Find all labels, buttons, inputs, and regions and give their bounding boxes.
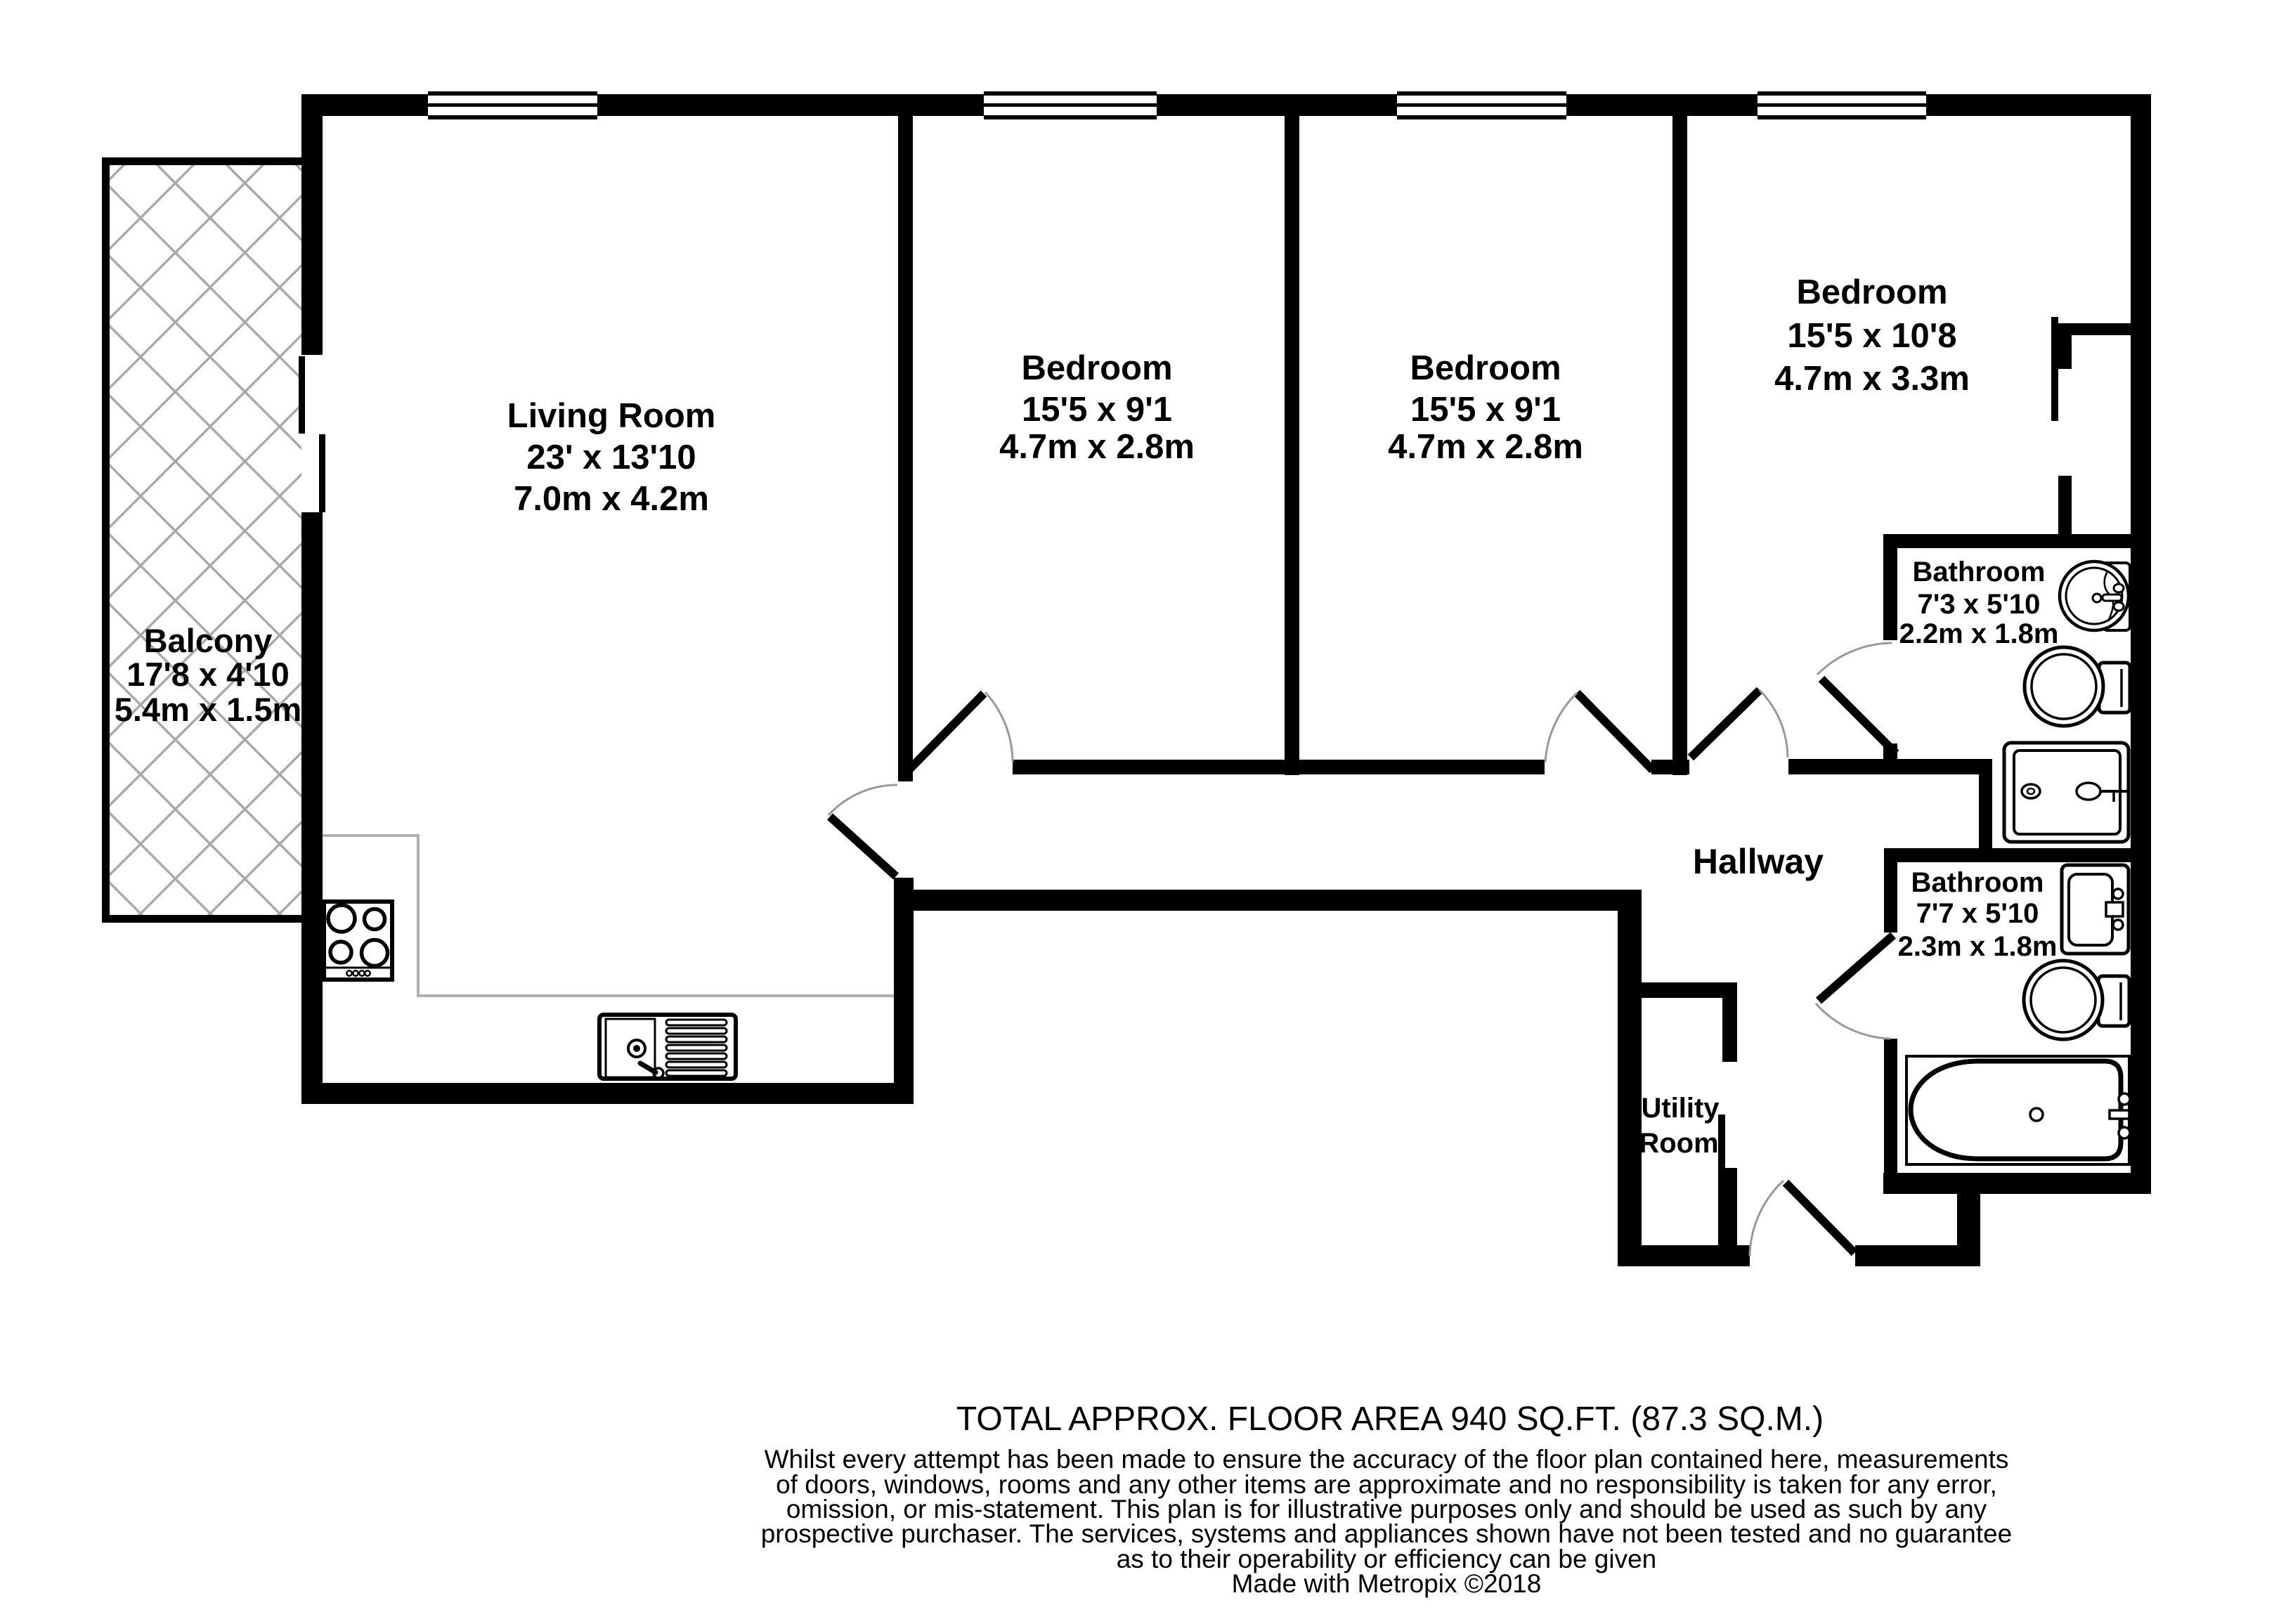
svg-text:Whilst every attempt has been: Whilst every attempt has been made to en… bbox=[765, 1445, 2009, 1474]
svg-text:TOTAL APPROX. FLOOR AREA 940 S: TOTAL APPROX. FLOOR AREA 940 SQ.FT. (87.… bbox=[956, 1401, 1824, 1438]
svg-text:5.4m x 1.5m: 5.4m x 1.5m bbox=[115, 691, 302, 728]
svg-text:2.2m x 1.8m: 2.2m x 1.8m bbox=[1899, 618, 2059, 649]
svg-text:Bathroom: Bathroom bbox=[1911, 867, 2044, 898]
svg-text:Balcony: Balcony bbox=[144, 622, 273, 659]
svg-text:15'5 x 9'1: 15'5 x 9'1 bbox=[1022, 391, 1172, 429]
svg-text:7'7 x 5'10: 7'7 x 5'10 bbox=[1916, 898, 2039, 929]
svg-text:7.0m x 4.2m: 7.0m x 4.2m bbox=[514, 480, 709, 518]
svg-text:15'5 x 10'8: 15'5 x 10'8 bbox=[1787, 317, 1956, 355]
svg-text:17'8 x 4'10: 17'8 x 4'10 bbox=[126, 656, 289, 693]
svg-text:Bedroom: Bedroom bbox=[1021, 349, 1172, 387]
svg-text:Utility: Utility bbox=[1641, 1093, 1720, 1124]
svg-text:Bathroom: Bathroom bbox=[1913, 557, 2046, 587]
svg-text:7'3 x 5'10: 7'3 x 5'10 bbox=[1918, 589, 2041, 620]
svg-text:Made with Metropix ©2018: Made with Metropix ©2018 bbox=[1232, 1569, 1542, 1598]
svg-text:Hallway: Hallway bbox=[1693, 842, 1824, 881]
svg-text:23' x 13'10: 23' x 13'10 bbox=[526, 439, 696, 476]
svg-text:Bedroom: Bedroom bbox=[1796, 273, 1947, 311]
svg-text:4.7m x 2.8m: 4.7m x 2.8m bbox=[1388, 428, 1583, 466]
svg-text:prospective purchaser. The ser: prospective purchaser. The services, sys… bbox=[761, 1519, 2013, 1548]
svg-text:Living Room: Living Room bbox=[507, 397, 716, 435]
svg-text:4.7m x 2.8m: 4.7m x 2.8m bbox=[999, 428, 1195, 466]
svg-text:2.3m x 1.8m: 2.3m x 1.8m bbox=[1898, 931, 2058, 962]
svg-text:Room: Room bbox=[1639, 1128, 1718, 1159]
svg-text:4.7m x 3.3m: 4.7m x 3.3m bbox=[1774, 360, 1970, 398]
svg-text:Bedroom: Bedroom bbox=[1410, 349, 1561, 387]
svg-text:15'5 x 9'1: 15'5 x 9'1 bbox=[1410, 391, 1561, 429]
